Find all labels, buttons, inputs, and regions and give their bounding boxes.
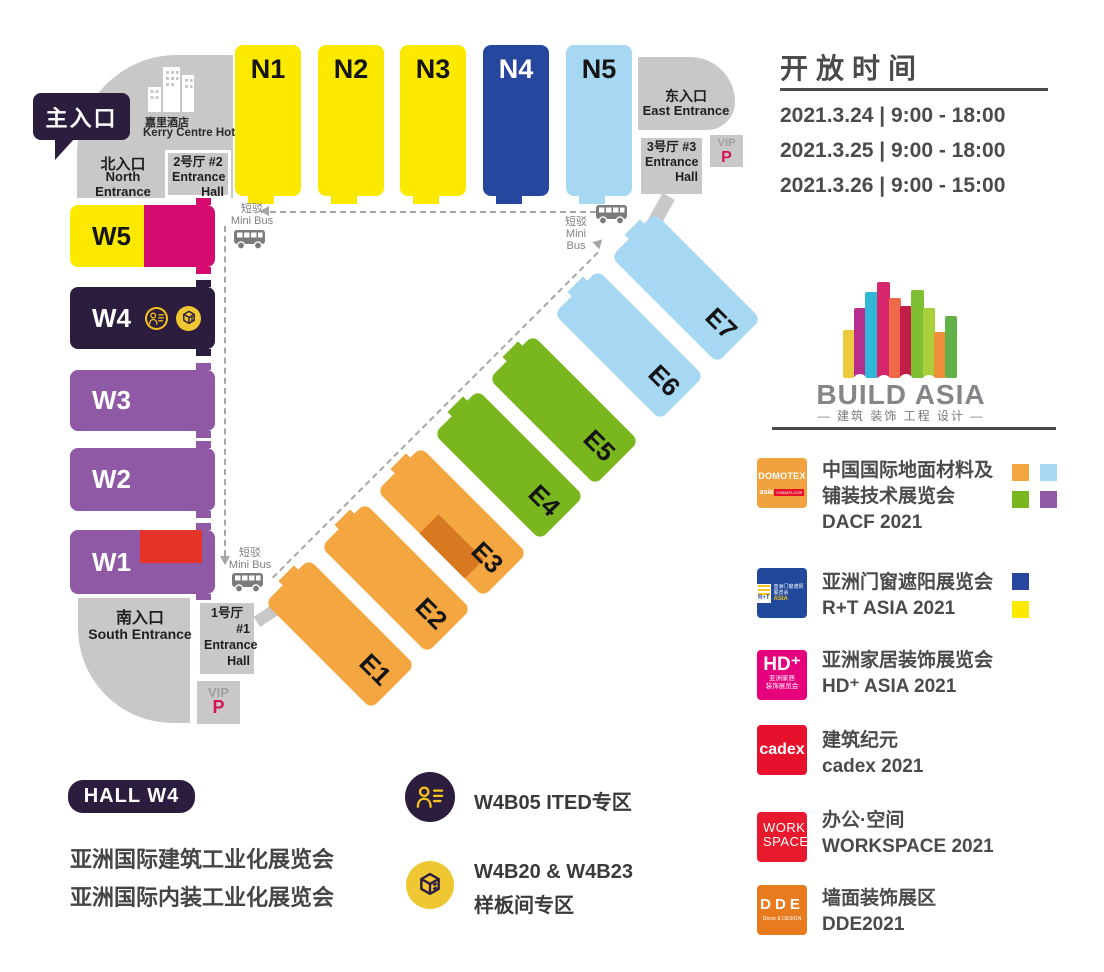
- entrance-hall-1-line2: #1: [204, 621, 250, 637]
- vip-parking-east: VIP P: [710, 135, 743, 167]
- legend-item-workspace: 办公·空间 WORKSPACE 2021: [822, 808, 994, 860]
- legend-item-hd-asia: 亚洲家居装饰展览会 HD⁺ ASIA 2021: [822, 648, 993, 700]
- entrance-hall-2-box: 2号厅 #2 Entrance Hall: [165, 150, 231, 198]
- hotel-name-en: Kerry Centre Hotel: [143, 127, 245, 139]
- entrance-hall-3-line1: 3号厅 #3: [645, 140, 698, 155]
- legend-line: DDE2021: [822, 912, 936, 938]
- legend-line: HD⁺ ASIA 2021: [822, 674, 993, 700]
- open-hours-row: 2021.3.26 | 9:00 - 15:00: [780, 174, 1005, 198]
- hall-n5-label: N5: [566, 54, 632, 85]
- hall-n4: N4: [483, 45, 549, 196]
- hotel-building-icon: [146, 64, 196, 114]
- legend-swatch: [1012, 464, 1029, 481]
- shuttle-route-horizontal: [270, 211, 606, 213]
- entrance-hall-3-box: 3号厅 #3 Entrance Hall: [638, 135, 705, 197]
- hd-asia-logo: HD⁺ 亚洲家居 装饰展览会: [757, 650, 807, 700]
- mini-bus-icon: [595, 203, 629, 225]
- hall-w2: W2: [70, 448, 215, 511]
- dde-logo-text: DDE: [757, 896, 807, 913]
- hall-connector-tab: [196, 349, 211, 356]
- hall-n1-label: N1: [235, 54, 301, 85]
- hd-logo-sub2: 装饰展览会: [757, 683, 807, 691]
- hall-n1: N1: [235, 45, 301, 196]
- legend-line: 办公·空间: [822, 808, 994, 834]
- entrance-hall-1-box: 1号厅 #1 Entrance Hall: [197, 600, 257, 677]
- legend-swatch: [1012, 601, 1029, 618]
- domotex-logo-sub2: CHINAFLOOR: [774, 489, 804, 496]
- rt-logo-text: 亚洲门窗遮阳展览会 ASIA: [774, 584, 807, 602]
- mini-bus-label-en: Mini Bus: [230, 215, 274, 227]
- legend-swatch: [1040, 464, 1057, 481]
- east-entrance-label-en: East Entrance: [640, 103, 732, 118]
- hall-e5-label: E5: [577, 423, 621, 467]
- south-entrance-label-en: South Entrance: [88, 626, 192, 642]
- hall-n2: N2: [318, 45, 384, 196]
- legend-item-dacf: 中国国际地面材料及 铺装技术展览会 DACF 2021: [822, 458, 993, 536]
- legend-item-dde: 墙面装饰展区 DDE2021: [822, 886, 936, 938]
- mini-bus-label-cn: 短驳: [230, 203, 274, 215]
- rt-logo-blind-icon: R+T: [757, 584, 771, 603]
- domotex-logo-text: DOMOTEX: [757, 471, 807, 481]
- hall-connector-tab: [196, 431, 211, 438]
- hall-n4-label: N4: [483, 54, 549, 85]
- hd-logo-text: HD⁺: [757, 655, 807, 675]
- parking-icon: P: [710, 150, 743, 166]
- legend-line: 铺装技术展览会: [822, 484, 993, 510]
- hall-e7-label: E7: [699, 301, 743, 345]
- hall-e4-label: E4: [522, 478, 566, 522]
- open-hours-title: 开放时间: [780, 47, 924, 87]
- ited-zone-text: W4B05 ITED专区: [474, 786, 632, 815]
- hall-connector-tab: [196, 441, 211, 448]
- entrance-hall-3-line3: Hall: [645, 170, 698, 185]
- legend-divider: [772, 427, 1056, 430]
- entrance-hall-1-line1: 1号厅: [204, 605, 250, 621]
- hall-n2-label: N2: [318, 54, 384, 85]
- entrance-hall-1-line3: Entrance: [204, 637, 250, 653]
- legend-line: DACF 2021: [822, 510, 993, 536]
- hall-connector-tab: [196, 511, 211, 518]
- hall-n3: N3: [400, 45, 466, 196]
- entrance-hall-1-line4: Hall: [204, 653, 250, 669]
- mini-bus-stop-east: 短驳 Mini Bus: [556, 216, 596, 252]
- domotex-logo-sub: asia: [760, 489, 774, 496]
- hall-w1-accent-block: [140, 530, 202, 563]
- legend-line: 亚洲门窗遮阳展览会: [822, 570, 993, 596]
- mini-bus-label-cn: 短驳: [556, 216, 596, 228]
- hall-connector-tab: [196, 280, 211, 287]
- hall-w4-badge: HALL W4: [68, 780, 195, 813]
- mini-bus-stop-north: 短驳 Mini Bus: [230, 203, 274, 227]
- legend-line: 亚洲家居装饰展览会: [822, 648, 993, 674]
- dde-logo-sub: Décor & DESIGN: [757, 916, 807, 922]
- hall-connector-tab: [196, 523, 211, 530]
- legend-swatch: [1012, 573, 1029, 590]
- hall-w5-right: [144, 205, 215, 267]
- hall-connector-tab: [196, 267, 211, 274]
- hall-w4-label: W4: [70, 303, 131, 334]
- ited-zone-icon: [405, 772, 455, 822]
- hd-logo-sub: 亚洲家居: [757, 675, 807, 683]
- mini-bus-label-en: Mini Bus: [556, 228, 596, 252]
- main-entrance-label: 主入口: [45, 101, 117, 133]
- ited-zone-icon: [145, 307, 168, 330]
- mini-bus-label-en: Mini Bus: [228, 559, 272, 571]
- hall-w2-label: W2: [70, 464, 131, 495]
- exhibition-floor-plan: 嘉里酒店 Kerry Centre Hotel 北入口 North Entran…: [0, 0, 1104, 972]
- legend-line: 中国国际地面材料及: [822, 458, 993, 484]
- mini-bus-icon: [233, 228, 267, 250]
- entrance-hall-2-line2: Entrance: [172, 170, 224, 185]
- sample-room-zone-text: W4B20 & W4B23: [474, 861, 633, 884]
- cadex-logo-text: cadex: [759, 741, 804, 759]
- open-hours-row: 2021.3.25 | 9:00 - 18:00: [780, 139, 1005, 163]
- legend-item-rt-asia: 亚洲门窗遮阳展览会 R+T ASIA 2021: [822, 570, 993, 622]
- vip-parking-south: VIP P: [197, 681, 240, 724]
- mini-bus-icon: [231, 571, 265, 593]
- hall-w3-label: W3: [70, 385, 131, 416]
- open-hours-row: 2021.3.24 | 9:00 - 18:00: [780, 104, 1005, 128]
- domotex-logo: DOMOTEX asiaCHINAFLOOR: [757, 458, 807, 508]
- hall-w5-left: W5: [70, 205, 144, 267]
- hall-w5-label: W5: [70, 221, 131, 252]
- hall-w4-exhibition-line: 亚洲国际建筑工业化展览会: [70, 842, 334, 874]
- sample-room-zone-icon: [176, 306, 201, 331]
- hall-w1: W1: [70, 530, 215, 594]
- sample-room-zone-icon: [406, 861, 454, 909]
- hall-connector-tab: [196, 198, 211, 205]
- build-asia-skyline-logo: [843, 280, 959, 382]
- workspace-logo: WORK SPACE: [757, 812, 807, 862]
- workspace-logo-text2: SPACE: [763, 835, 807, 849]
- hall-e6-label: E6: [642, 358, 686, 402]
- hall-n5: N5: [566, 45, 632, 196]
- hall-w4: W4: [70, 287, 215, 349]
- main-entrance-badge-tail: [55, 138, 75, 160]
- legend-line: R+T ASIA 2021: [822, 596, 993, 622]
- build-asia-tagline: — 建筑 装饰 工程 设计 —: [790, 407, 1012, 424]
- legend-swatch: [1040, 491, 1057, 508]
- hall-e2-label: E2: [409, 591, 453, 635]
- parking-icon: P: [197, 699, 240, 715]
- hall-w5: W5: [70, 205, 215, 267]
- legend-swatch: [1012, 491, 1029, 508]
- shuttle-route-vertical: [224, 226, 226, 556]
- open-hours-underline: [780, 88, 1048, 91]
- mini-bus-stop-south: 短驳 Mini Bus: [228, 547, 272, 571]
- hall-n3-label: N3: [400, 54, 466, 85]
- hall-w3: W3: [70, 370, 215, 431]
- hall-w1-label: W1: [70, 547, 131, 578]
- hall-w4-exhibition-line: 亚洲国际内装工业化展览会: [70, 880, 334, 912]
- cadex-logo: cadex: [757, 725, 807, 775]
- workspace-logo-text: WORK: [763, 821, 807, 835]
- legend-line: cadex 2021: [822, 754, 923, 780]
- entrance-hall-2-line1: 2号厅 #2: [172, 155, 224, 170]
- legend-item-cadex: 建筑纪元 cadex 2021: [822, 728, 923, 780]
- south-entrance-label-cn: 南入口: [105, 604, 175, 628]
- sample-room-zone-text2: 样板间专区: [474, 889, 574, 918]
- legend-line: 墙面装饰展区: [822, 886, 936, 912]
- main-entrance-badge: 主入口: [33, 93, 130, 140]
- hall-w4-badge-label: HALL W4: [84, 785, 180, 808]
- rt-asia-logo: R+T 亚洲门窗遮阳展览会 ASIA: [757, 568, 807, 618]
- legend-line: 建筑纪元: [822, 728, 923, 754]
- legend-line: WORKSPACE 2021: [822, 834, 994, 860]
- north-entrance-label-en: North Entrance: [77, 169, 169, 199]
- entrance-hall-3-line2: Entrance: [645, 155, 698, 170]
- dde-logo: DDE Décor & DESIGN: [757, 885, 807, 935]
- hall-connector-tab: [196, 363, 211, 370]
- mini-bus-label-cn: 短驳: [228, 547, 272, 559]
- hall-e3-label: E3: [465, 535, 509, 579]
- hall-e1-label: E1: [353, 647, 397, 691]
